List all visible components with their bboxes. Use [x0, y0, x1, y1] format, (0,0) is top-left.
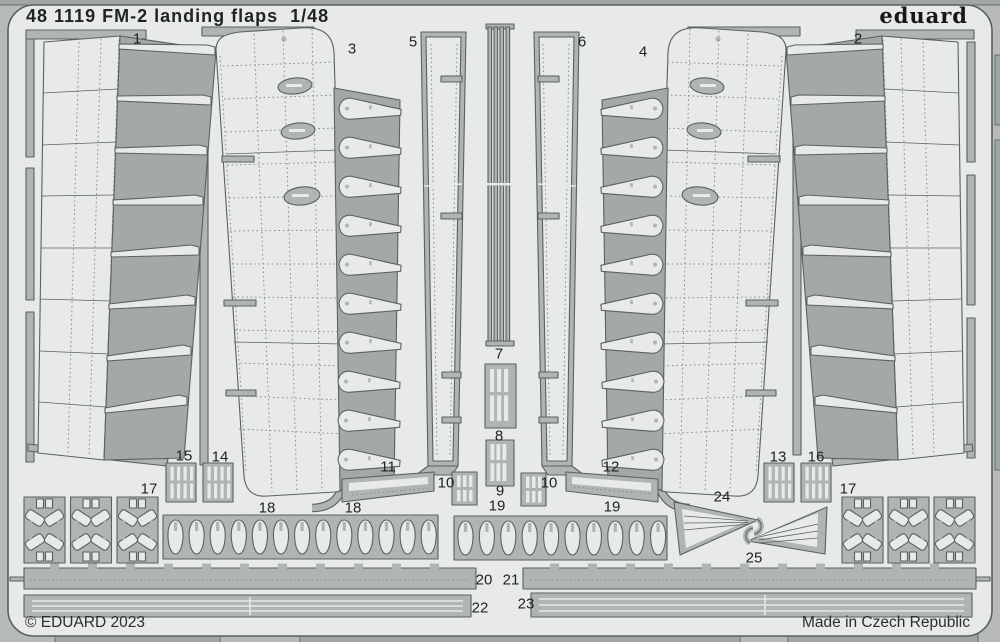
part-17-hinge-panels-right	[842, 497, 975, 563]
part-16-grid	[801, 463, 831, 502]
fret-diagram	[0, 0, 1000, 642]
part-13-grid	[764, 463, 794, 502]
part-3-flap-left	[216, 28, 402, 496]
part-4-flap-right	[600, 28, 786, 496]
part-8-plate	[485, 364, 516, 428]
part-23-laminated-strip	[531, 593, 972, 617]
part-17-hinge-panels-left	[24, 497, 158, 563]
part-14-grid	[203, 463, 233, 502]
part-19-rib-comb	[454, 516, 667, 560]
part-15-grid	[166, 463, 196, 502]
part-10-grid-right	[521, 473, 546, 506]
photo-etch-fret-sheet: 48 1119 FM-2 landing flaps 1/48 eduard ©…	[0, 0, 1000, 642]
part-2-flap-skin-right	[786, 36, 964, 460]
part-22-laminated-strip	[24, 595, 471, 617]
part-1-flap-skin-left	[38, 36, 216, 460]
part-9-plate	[486, 440, 514, 486]
part-18-rib-comb	[163, 515, 438, 559]
part-10-grid-left	[452, 472, 477, 505]
